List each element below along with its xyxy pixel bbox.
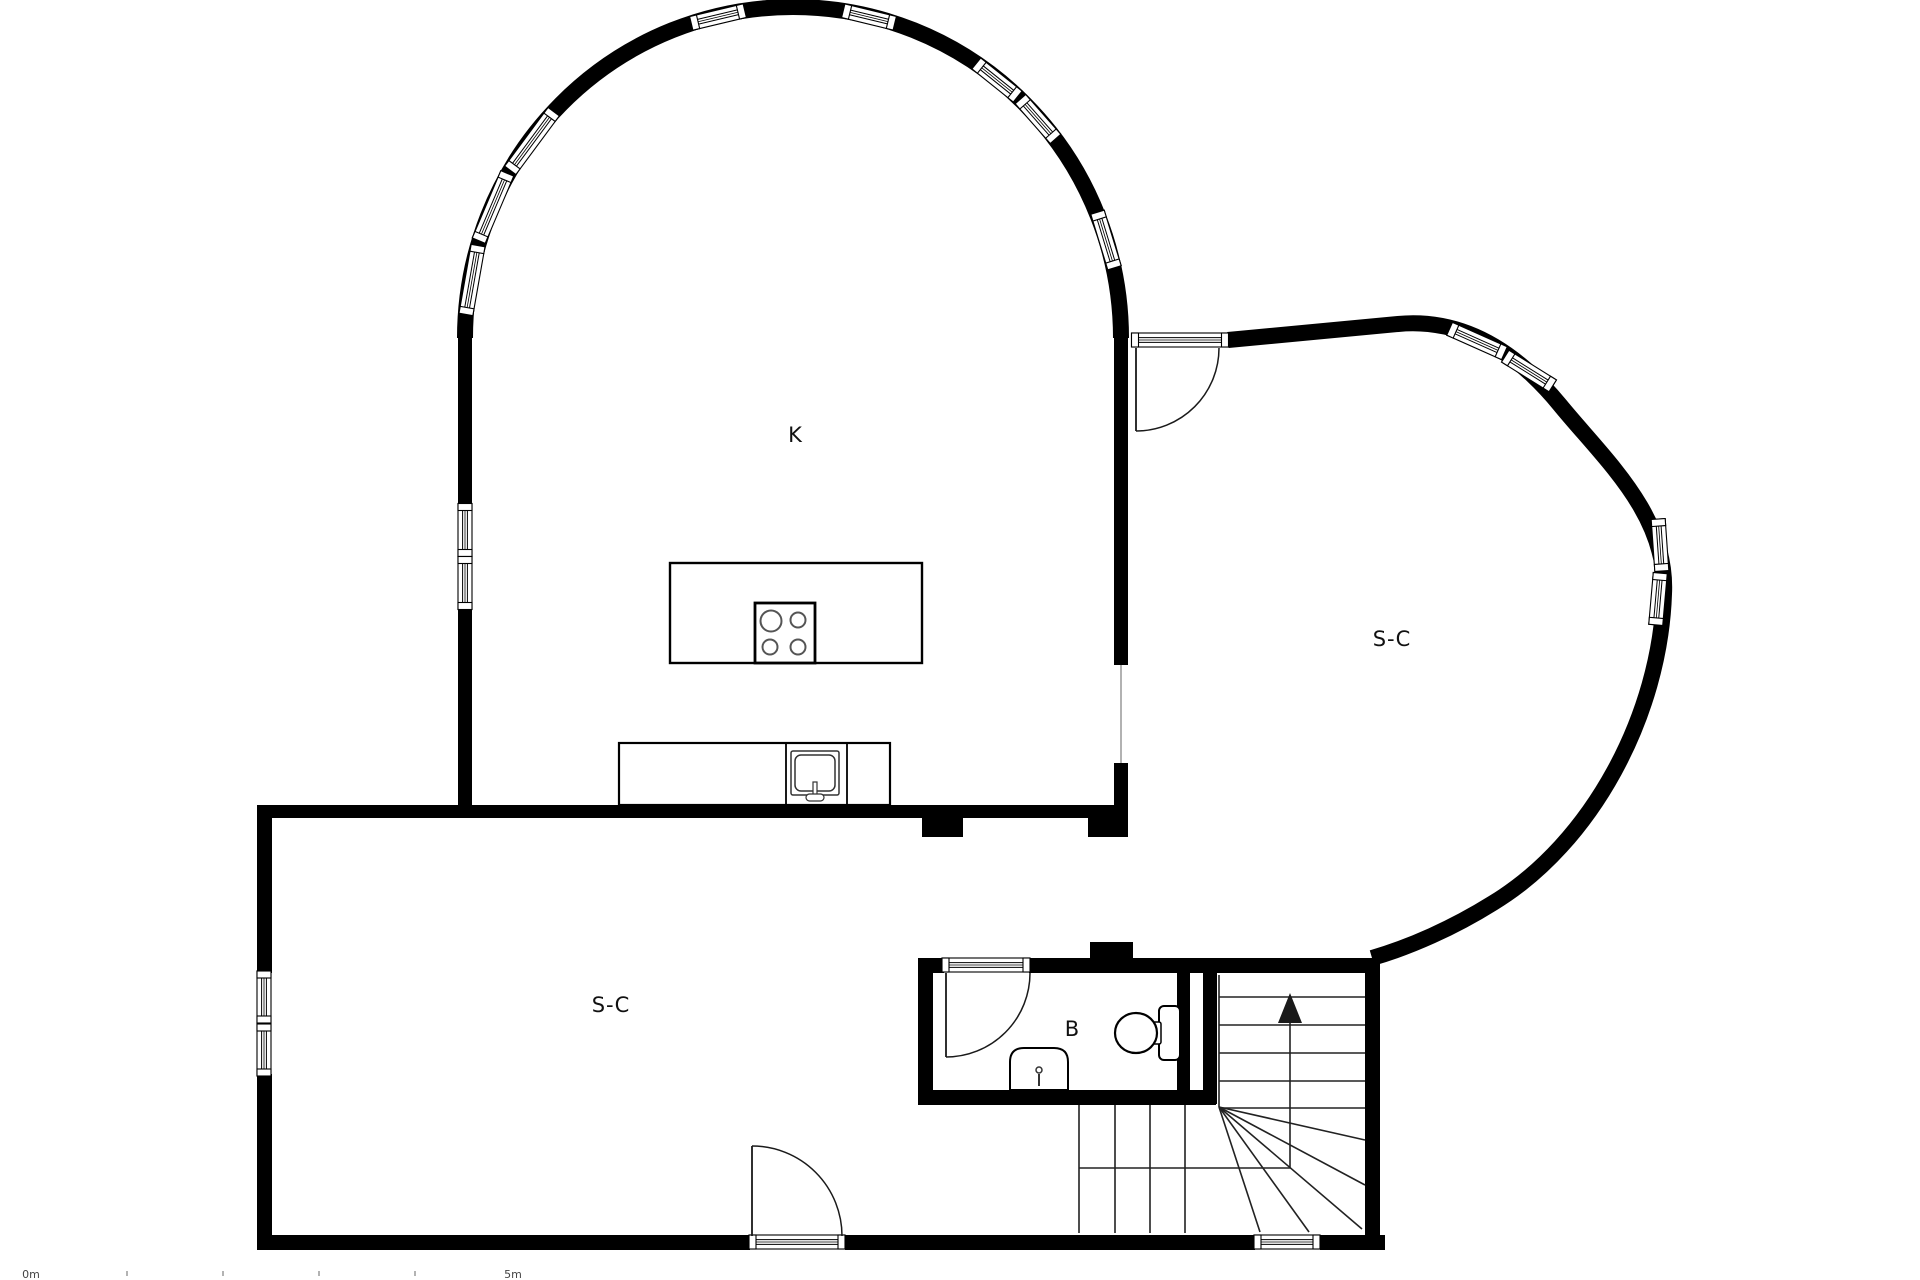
- door-swing-arc-bath: [946, 973, 1030, 1057]
- floor-plan-canvas: KS-CS-CB0m5m: [0, 0, 1920, 1280]
- wall-kitchen-bottom: [257, 805, 1128, 818]
- wall-bath-left: [918, 958, 933, 1105]
- wall-k-right-upper: [1114, 324, 1128, 665]
- wall-stub-left: [922, 818, 963, 837]
- window-curve-3: [1651, 519, 1669, 572]
- wall-k-left-lower: [458, 607, 472, 818]
- kitchen-counter: [619, 743, 890, 805]
- stair-winder: [1219, 1107, 1365, 1140]
- toilet-bowl: [1115, 1013, 1157, 1053]
- arch-wall: [465, 7, 1121, 338]
- scale-tick: [222, 1271, 224, 1276]
- wall-bottom-b: [845, 1235, 1255, 1250]
- window-arch-2: [472, 171, 513, 244]
- door-swing-arc-bottom: [752, 1146, 842, 1236]
- scale-tick: [414, 1271, 416, 1276]
- stove-burner: [791, 640, 806, 655]
- stove-burner: [761, 611, 782, 632]
- wall-k-left-upper: [458, 331, 472, 505]
- window-arch-6: [972, 58, 1022, 102]
- wall-bottom-a: [257, 1235, 750, 1250]
- door-threshold-bath: [942, 958, 1030, 972]
- scale-label-0m: 0m: [22, 1268, 40, 1280]
- scale-label-5m: 5m: [504, 1268, 522, 1280]
- window-arch-8: [1091, 210, 1121, 270]
- room-label-bathroom: B: [1065, 1017, 1079, 1041]
- window-arch-7: [1015, 94, 1061, 143]
- kitchen-faucet-base: [806, 794, 824, 801]
- window-sc-left-upper: [257, 971, 271, 1023]
- wall-left-upper: [257, 805, 272, 973]
- wall-bath-top-right: [1029, 958, 1380, 973]
- door-swing-arc-sc: [1136, 348, 1219, 431]
- scale-tick: [318, 1271, 320, 1276]
- wall-stair-left: [1203, 973, 1217, 1104]
- room-label-living-right: S-C: [1373, 627, 1412, 651]
- stove-burner: [763, 640, 778, 655]
- stair-winder: [1219, 1107, 1309, 1232]
- kitchen-faucet-stem: [813, 782, 817, 795]
- room-label-kitchen: K: [788, 423, 803, 447]
- window-k-left-upper: [458, 504, 472, 557]
- wall-left-lower: [257, 1074, 272, 1250]
- toilet-tank: [1159, 1006, 1180, 1060]
- stove-burner: [791, 613, 806, 628]
- scale-tick: [126, 1271, 128, 1276]
- window-arch-3: [505, 107, 560, 174]
- wall-stair-right: [1365, 958, 1380, 1250]
- window-curve-2: [1502, 350, 1557, 392]
- door-threshold-sc: [1132, 333, 1229, 347]
- sc-curved-wall: [1228, 323, 1664, 958]
- door-threshold-bottom: [749, 1235, 845, 1249]
- window-k-left-lower: [458, 557, 472, 610]
- wall-bath-stub-above: [1090, 942, 1133, 958]
- window-bottom-stairs: [1254, 1235, 1320, 1249]
- bathroom-faucet-dot: [1036, 1067, 1042, 1073]
- wall-bath-bottom: [918, 1090, 1216, 1105]
- wall-k-right-lower: [1114, 763, 1128, 837]
- window-sc-left-lower: [257, 1024, 271, 1076]
- floor-plan-svg: KS-CS-CB0m5m: [0, 0, 1920, 1280]
- room-label-living-lower: S-C: [592, 993, 631, 1017]
